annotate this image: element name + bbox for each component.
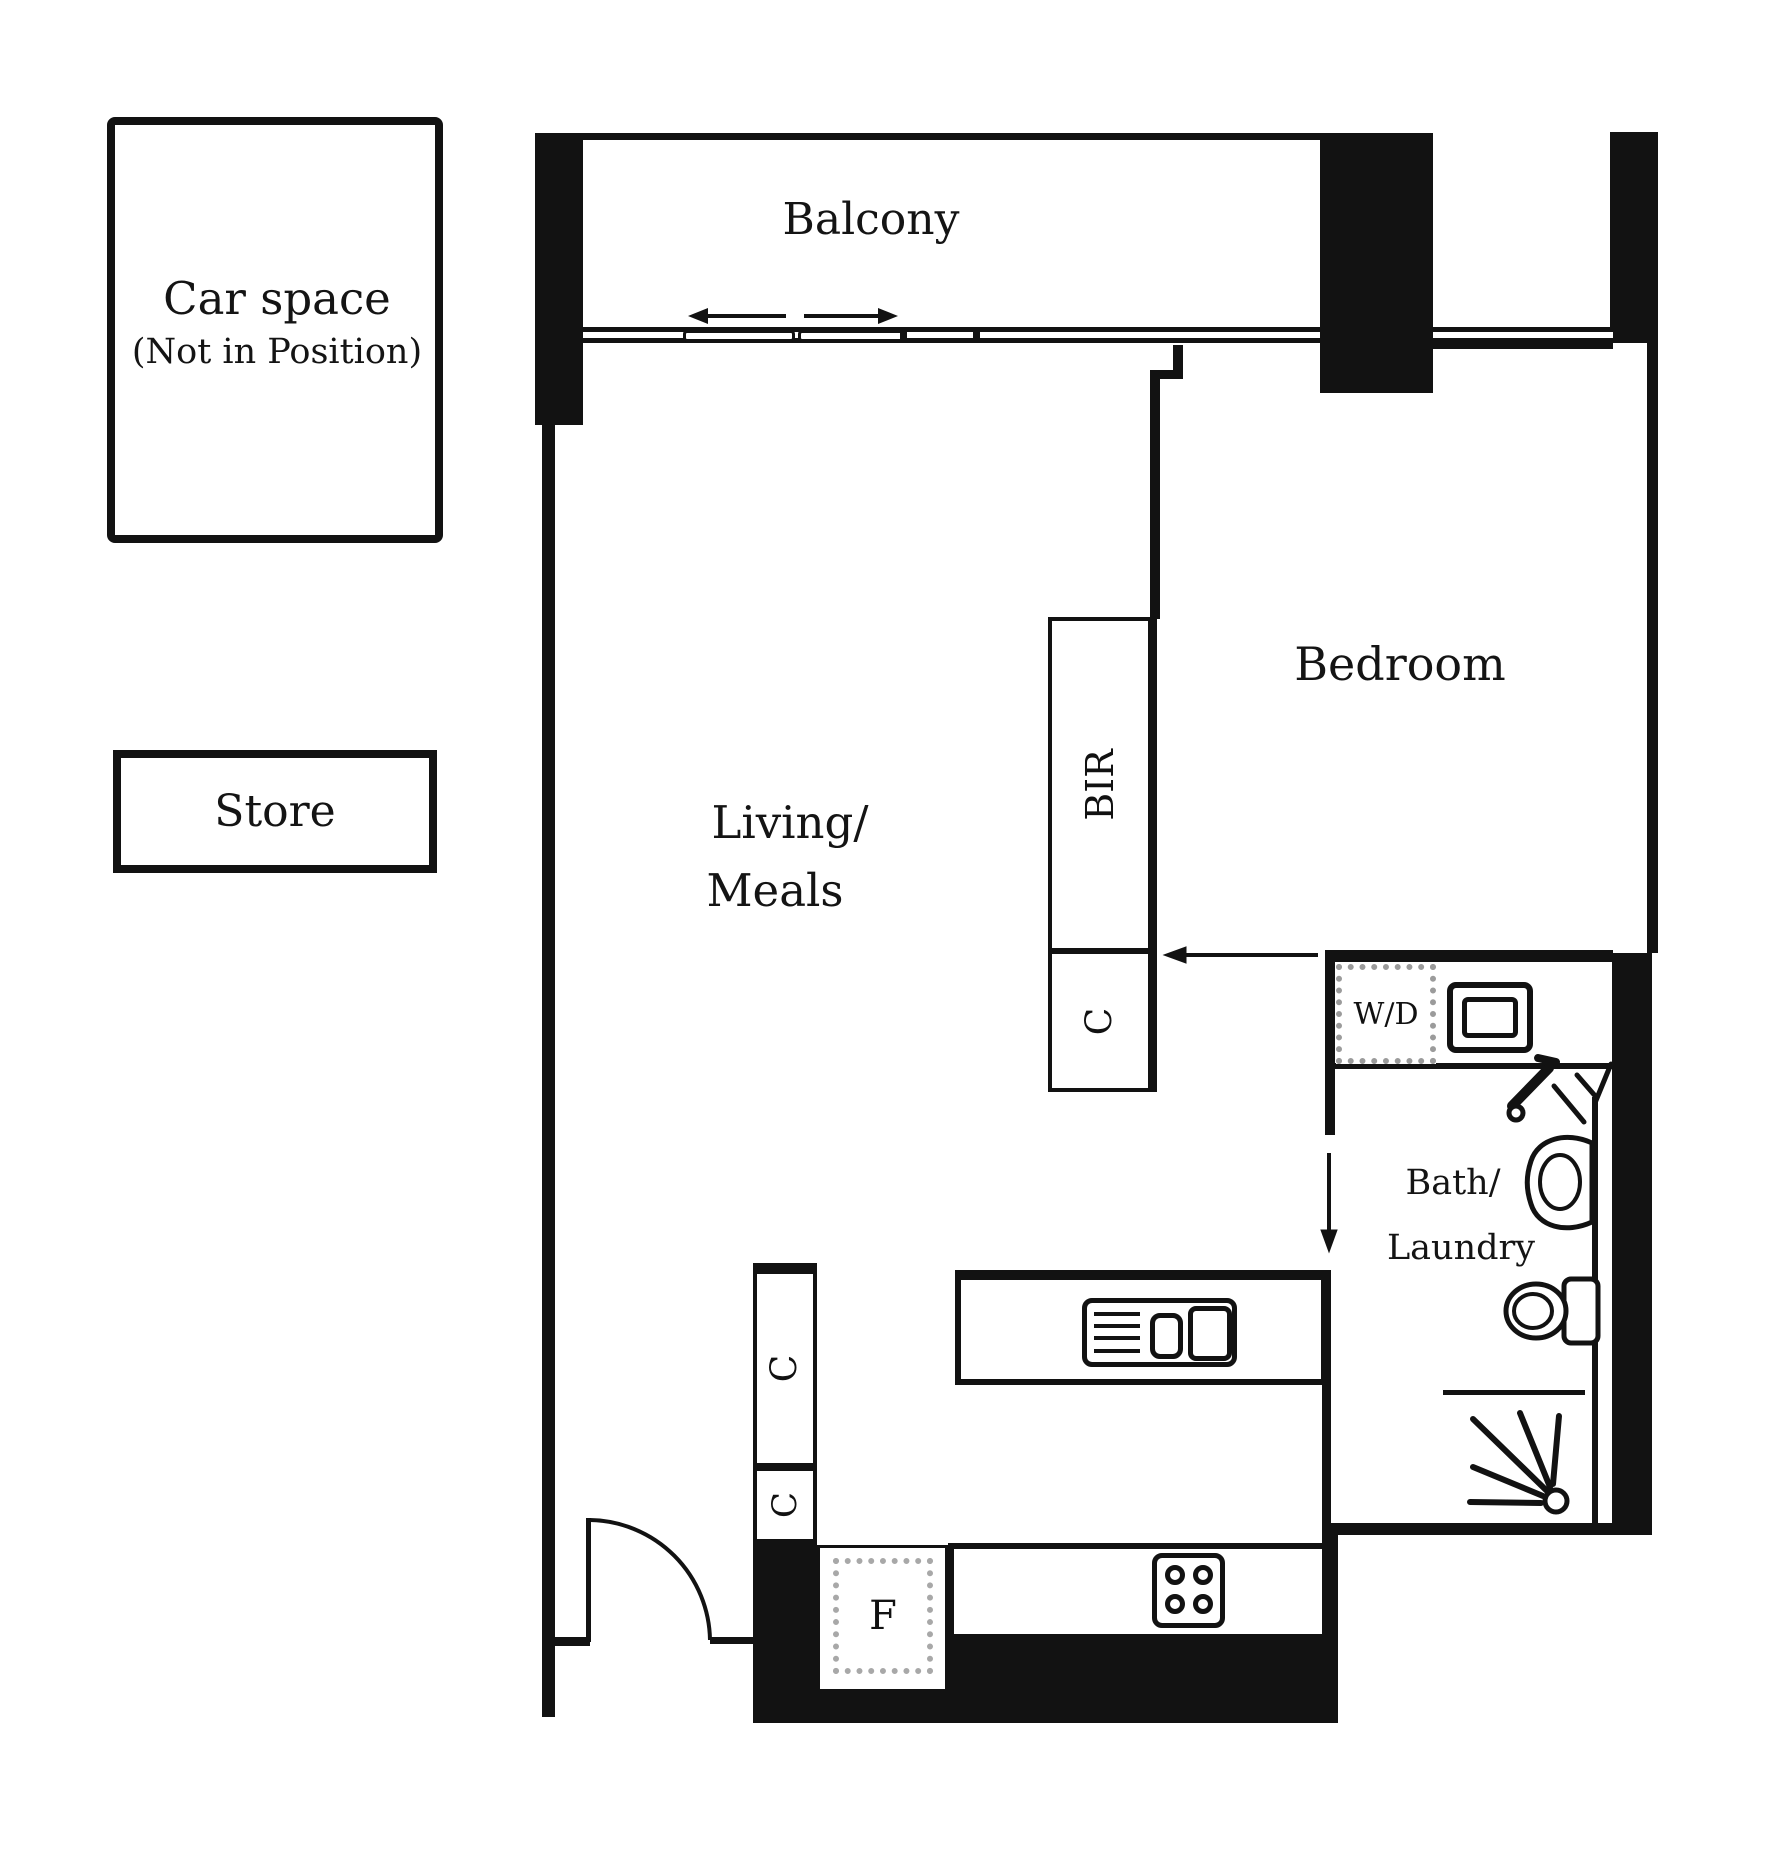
plan-symbols-layer — [0, 0, 1772, 1857]
sliding-door-arrows-icon — [688, 308, 898, 324]
tap-icon — [1509, 1058, 1611, 1122]
floor-plan: Car space (Not in Position) Store BIR C … — [0, 0, 1772, 1857]
bedroom-entry-arrow-icon — [1164, 947, 1318, 963]
entry-door-swing-icon — [590, 1520, 710, 1640]
vanity-basin-icon — [1527, 1137, 1592, 1227]
toilet-icon — [1506, 1279, 1598, 1343]
bath-door-arrow-icon — [1321, 1153, 1337, 1252]
shower-spray-icon — [1470, 1413, 1567, 1512]
